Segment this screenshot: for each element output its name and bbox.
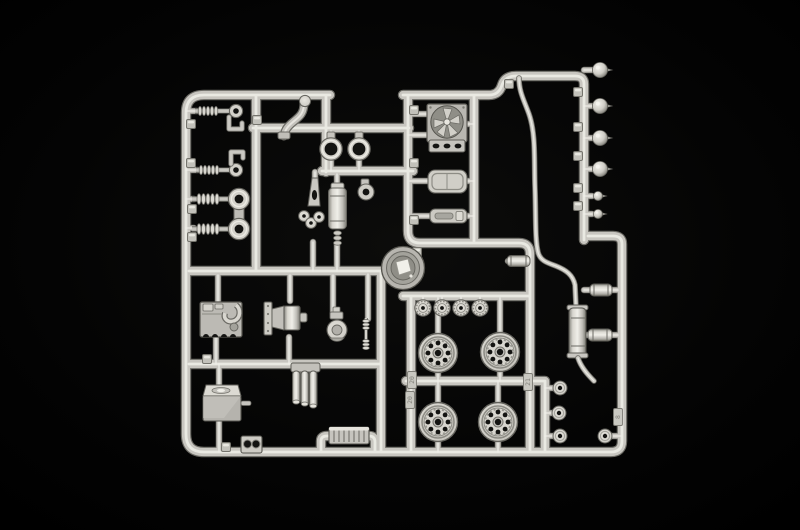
sprue-photo: 20 20 21 8: [0, 0, 800, 530]
part-number-plate: 20: [406, 392, 415, 409]
engine-block: [200, 302, 242, 337]
sprue-gate-tab: [410, 159, 419, 168]
part-number-plate: 21: [524, 374, 533, 391]
part-number-label: 21: [524, 378, 532, 386]
part-number-label: 8: [614, 415, 622, 419]
sprue-gate-tab: [188, 205, 197, 214]
road-wheel-4: [479, 403, 518, 442]
twin-gauge-bezel: [241, 436, 262, 453]
sprue-gate-tab: [505, 80, 514, 89]
inline-filter: [507, 256, 530, 267]
seat-pan: [428, 170, 467, 193]
part-number-plate: 8: [614, 409, 623, 426]
idler-wheel-3: [453, 300, 469, 316]
pipe-coupling-1: [590, 284, 612, 296]
heater-core: [329, 427, 369, 444]
road-wheel-3: [419, 403, 458, 442]
sprue-gate-tab: [410, 216, 419, 225]
horn-drum: [382, 247, 425, 290]
sprue-gate-tab: [187, 120, 196, 129]
sprue-gate-tab: [574, 123, 583, 132]
hubcap-disc-4: [598, 429, 612, 443]
sprue-gate-tab: [188, 233, 197, 242]
hubcap-disc-3: [553, 429, 567, 443]
part-number-label: 20: [406, 396, 414, 404]
triple-tube-assembly: [291, 363, 320, 408]
sprue-gate-tab: [574, 184, 583, 193]
idler-wheel-1: [415, 300, 431, 316]
road-wheel-1: [419, 334, 458, 373]
sprue-gate-tab: [574, 152, 583, 161]
pipe-coupling-2: [588, 329, 612, 341]
sprue-gate-tab: [203, 355, 212, 364]
part-number-plate: 20: [408, 372, 417, 389]
hubcap-disc-1: [553, 381, 567, 395]
idler-wheel-2: [434, 300, 450, 316]
sprue-gate-tab: [253, 116, 262, 125]
radiator-with-fan: [427, 104, 467, 152]
sprue-gate-tab: [410, 106, 419, 115]
sprue-gate-tab: [574, 88, 583, 97]
sprue-gate-tab: [187, 159, 196, 168]
sprue-gate-tab: [574, 202, 583, 211]
part-number-label: 20: [408, 376, 416, 384]
sprue-gate-tab: [222, 443, 231, 452]
idler-wheel-4: [472, 300, 488, 316]
hubcap-disc-2: [552, 406, 566, 420]
sprue-photo-canvas: 20 20 21 8: [0, 0, 800, 530]
road-wheel-2: [481, 333, 520, 372]
step-plate: [430, 209, 467, 223]
